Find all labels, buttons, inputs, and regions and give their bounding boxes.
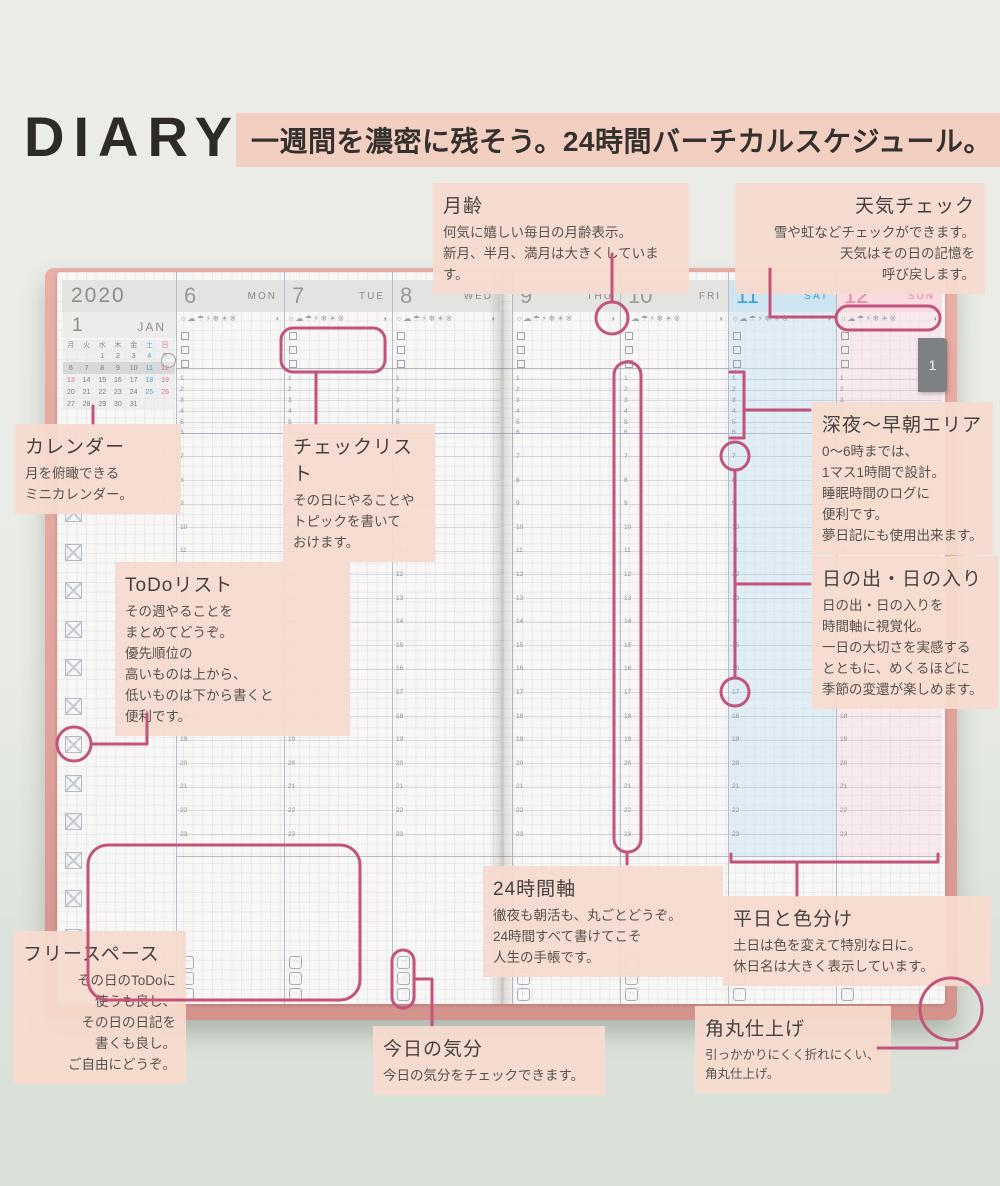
hour-line [513, 787, 620, 788]
day-name: FRI [699, 291, 721, 302]
hour-line [393, 787, 500, 788]
hour-line [621, 645, 728, 646]
hour-number: 8 [732, 477, 736, 484]
hour-line [285, 411, 392, 412]
calendar-date: 11 [141, 365, 157, 372]
hour-number: 17 [396, 689, 403, 696]
hour-line [621, 574, 728, 575]
hour-number: 20 [516, 760, 523, 767]
hour-line [393, 422, 500, 423]
weather-row: ○☁☂⚡❄☀※◑ [397, 314, 495, 323]
weather-icons: ○☁☂⚡❄☀※ [517, 314, 574, 323]
hour-line [393, 645, 500, 646]
annotation-body: 引っかかりにくく折れにくい、 角丸仕上げ。 [705, 1046, 881, 1085]
hour-line [513, 551, 620, 552]
calendar-date: 19 [157, 377, 173, 384]
hour-number: 1 [516, 375, 520, 382]
weather-row: ○☁☂⚡❄☀※◑ [181, 314, 279, 323]
hour-line [729, 834, 836, 835]
hour-number: 12 [396, 571, 403, 578]
checklist-checkbox [841, 346, 849, 354]
hour-number: 15 [732, 642, 739, 649]
hour-line [729, 379, 836, 380]
todo-checkbox [65, 544, 82, 561]
hour-number: 4 [288, 408, 292, 415]
annotation-body: 何気に嬉しい毎日の月齢表示。 新月、半月、満月は大きくしています。 [443, 223, 679, 286]
calendar-date: 8 [94, 365, 110, 372]
hour-number: 3 [180, 397, 184, 404]
hour-line [177, 740, 284, 741]
hour-number: 14 [396, 618, 403, 625]
annotation-title: ToDoリスト [125, 570, 340, 597]
hour-line [177, 456, 284, 457]
hour-number: 21 [840, 783, 847, 790]
hour-number: 21 [288, 783, 295, 790]
hour-number: 16 [516, 665, 523, 672]
hour-number: 18 [624, 713, 631, 720]
hour-line [513, 669, 620, 670]
hour-number: 22 [840, 807, 847, 814]
hour-number: 9 [516, 500, 520, 507]
calendar-date: 15 [94, 377, 110, 384]
hour-line [621, 810, 728, 811]
hour-number: 2 [840, 386, 844, 393]
annotation-title: 平日と色分け [733, 904, 981, 931]
hour-number: 4 [180, 408, 184, 415]
hour-number: 19 [288, 736, 295, 743]
calendar-week-row: 2728293031 [63, 398, 175, 410]
hour-number: 5 [624, 419, 628, 426]
annotation-title: チェックリスト [293, 432, 425, 486]
hour-number: 4 [624, 408, 628, 415]
hour-line [393, 834, 500, 835]
hour-number: 19 [624, 736, 631, 743]
hour-line [285, 810, 392, 811]
hour-number: 8 [516, 477, 520, 484]
moon-phase-icon: ◑ [932, 314, 937, 323]
annotation-today-mood: 今日の気分 今日の気分をチェックできます。 [373, 1026, 605, 1095]
calendar-date: 16 [110, 377, 126, 384]
calendar-date: 3 [126, 353, 142, 360]
hour-number: 8 [624, 477, 628, 484]
mood-check-icon: ·· [289, 956, 302, 969]
weather-row: ○☁☂⚡❄☀※◑ [625, 314, 723, 323]
weather-icons: ○☁☂⚡❄☀※ [397, 314, 454, 323]
hour-number: 22 [624, 807, 631, 814]
hour-number: 23 [840, 831, 847, 838]
hour-line [513, 598, 620, 599]
hour-number: 3 [732, 397, 736, 404]
weather-row: ○☁☂⚡❄☀※◑ [289, 314, 387, 323]
hour-number: 1 [624, 375, 628, 382]
calendar-date: 13 [63, 377, 79, 384]
hour-line [393, 763, 500, 764]
hour-number: 21 [732, 783, 739, 790]
hour-line [621, 400, 728, 401]
hour-number: 16 [396, 665, 403, 672]
hour-number: 20 [624, 760, 631, 767]
hour-line [729, 740, 836, 741]
hour-line [513, 390, 620, 391]
hour-number: 10 [624, 524, 631, 531]
hour-line [621, 598, 728, 599]
hour-number: 12 [732, 571, 739, 578]
annotation-title: 天気チェック [745, 191, 975, 218]
hour-line [177, 422, 284, 423]
hour-line [513, 622, 620, 623]
hour-line [621, 763, 728, 764]
hour-number: 13 [732, 595, 739, 602]
hour-number: 16 [732, 665, 739, 672]
hour-number: 14 [624, 618, 631, 625]
hour-number: 23 [396, 831, 403, 838]
weather-row: ○☁☂⚡❄☀※◑ [733, 314, 831, 323]
hour-number: 4 [516, 408, 520, 415]
calendar-date: 20 [63, 389, 79, 396]
hour-line [621, 390, 728, 391]
todo-checkbox [65, 582, 82, 599]
hour-line [621, 669, 728, 670]
todo-checkbox [65, 736, 82, 753]
hour-line [393, 390, 500, 391]
calendar-date: 25 [141, 389, 157, 396]
checklist-checkbox [289, 346, 297, 354]
hour-number: 13 [516, 595, 523, 602]
hour-number: 19 [732, 736, 739, 743]
hour-number: 6 [624, 429, 628, 436]
hour-line [513, 574, 620, 575]
calendar-date: 22 [94, 389, 110, 396]
month-label: 1 JAN [62, 312, 176, 338]
annotation-body: その週やることを まとめてどうぞ。 優先順位の 高いものは上から、 低いものは下… [125, 602, 340, 728]
year-label: 2020 [62, 280, 176, 312]
hour-line [393, 411, 500, 412]
hour-number: 16 [624, 665, 631, 672]
hour-line [177, 390, 284, 391]
calendar-weekday: 木 [110, 340, 126, 350]
hour-line [393, 669, 500, 670]
calendar-date: 14 [79, 377, 95, 384]
hour-line [513, 645, 620, 646]
hour-line [177, 379, 284, 380]
hour-line [285, 834, 392, 835]
calendar-weekday: 土 [141, 340, 157, 350]
hour-line [513, 716, 620, 717]
todo-checkbox [65, 659, 82, 676]
annotation-sunrise-sunset: 日の出・日の入り 日の出・日の入りを 時間軸に視覚化。 一日の大切さを実感する … [812, 556, 998, 709]
hour-line [837, 716, 942, 717]
calendar-date: 10 [126, 365, 142, 372]
hour-number: 2 [516, 386, 520, 393]
hour-line [621, 456, 728, 457]
hour-line [513, 456, 620, 457]
hour-number: 3 [288, 397, 292, 404]
month-index-tab: 1 [918, 338, 947, 392]
annotation-midnight-area: 深夜〜早朝エリア 0〜6時までは、 1マス1時間で設計。 睡眠時間のログに 便利… [812, 402, 993, 555]
moon-phase-icon: ◑ [610, 314, 615, 323]
hour-line [837, 740, 942, 741]
hour-number: 13 [396, 595, 403, 602]
checklist-checkbox [181, 346, 189, 354]
hour-line [513, 504, 620, 505]
mood-check-icon: ·· [397, 972, 410, 985]
hour-line [177, 411, 284, 412]
hour-number: 2 [732, 386, 736, 393]
todo-checkbox [65, 775, 82, 792]
hour-number: 21 [180, 783, 187, 790]
hour-number: 20 [288, 760, 295, 767]
hour-line [393, 740, 500, 741]
calendar-weekday: 金 [126, 340, 142, 350]
hour-number: 20 [840, 760, 847, 767]
hour-number: 21 [396, 783, 403, 790]
calendar-date: 9 [110, 365, 126, 372]
hour-number: 7 [516, 453, 520, 460]
hour-number: 9 [732, 500, 736, 507]
hour-number: 22 [732, 807, 739, 814]
mood-check-icon: ·· [841, 988, 854, 1001]
hour-number: 3 [516, 397, 520, 404]
weather-row: ○☁☂⚡❄☀※◑ [517, 314, 615, 323]
hour-line [285, 740, 392, 741]
month-number: 1 [72, 315, 83, 337]
hour-line [513, 480, 620, 481]
checklist-checkbox [517, 360, 525, 368]
hour-number: 1 [396, 375, 400, 382]
hour-number: 10 [180, 524, 187, 531]
hour-line [621, 787, 728, 788]
annotation-free-space: フリースペース その日のToDoに 使うも良し、 その日の日記を 書くも良し。 … [13, 931, 186, 1084]
hour-line [621, 716, 728, 717]
annotation-rounded-corners: 角丸仕上げ 引っかかりにくく折れにくい、 角丸仕上げ。 [695, 1006, 891, 1093]
mood-check-icon: ·· [289, 972, 302, 985]
calendar-date: 17 [126, 377, 142, 384]
calendar-week-row: 12345 [63, 350, 175, 362]
annotation-body: 雪や虹などチェックができます。 天気はその日の記憶を 呼び戻します。 [745, 223, 975, 286]
hour-number: 1 [732, 375, 736, 382]
hour-number: 18 [840, 713, 847, 720]
annotation-body: 月を俯瞰できる ミニカレンダー。 [25, 464, 171, 506]
moon-phase-icon: ◑ [382, 314, 387, 323]
annotation-body: 徹夜も朝活も、丸ごとどうぞ。 24時間すべて書けてこそ 人生の手帳です。 [493, 906, 713, 969]
hour-number: 17 [516, 689, 523, 696]
hour-line [621, 692, 728, 693]
hour-number: 19 [180, 736, 187, 743]
annotation-title: フリースペース [23, 939, 176, 966]
weather-row: ○☁☂⚡❄☀※◑ [841, 314, 937, 323]
hour-number: 23 [732, 831, 739, 838]
hour-line [621, 834, 728, 835]
page: { "header": { "brand": "DIARY", "tagline… [0, 0, 1000, 1186]
day-name: TUE [359, 291, 385, 302]
calendar-date: 29 [94, 401, 110, 408]
checklist-checkbox [733, 360, 741, 368]
checklist-checkbox [517, 332, 525, 340]
hour-number: 17 [624, 689, 631, 696]
hour-line [513, 379, 620, 380]
tagline-text: 一週間を濃密に残そう。24時間バーチカルスケジュール。 [251, 120, 992, 160]
calendar-date: 7 [79, 365, 95, 372]
annotation-title: カレンダー [25, 432, 171, 459]
calendar-weekday: 日 [157, 340, 173, 350]
calendar-date: 1 [94, 353, 110, 360]
hour-number: 11 [732, 547, 739, 554]
annotation-weather-check: 天気チェック 雪や虹などチェックができます。 天気はその日の記憶を 呼び戻します… [735, 183, 985, 294]
hour-line [837, 834, 942, 835]
hour-number: 1 [840, 375, 844, 382]
hour-number: 12 [516, 571, 523, 578]
hour-line [285, 400, 392, 401]
tagline-band: 一週間を濃密に残そう。24時間バーチカルスケジュール。 [236, 113, 1000, 167]
hour-number: 10 [516, 524, 523, 531]
hour-line [513, 400, 620, 401]
hour-line [513, 422, 620, 423]
hour-line [393, 692, 500, 693]
hour-line [177, 433, 284, 434]
month-name: JAN [137, 320, 166, 334]
calendar-date: 26 [157, 389, 173, 396]
checklist-checkbox [397, 360, 405, 368]
hour-line [513, 810, 620, 811]
day-header: 6MON [177, 280, 284, 312]
hour-line [177, 787, 284, 788]
checklist-checkbox [181, 360, 189, 368]
calendar-weekday: 火 [79, 340, 95, 350]
hour-number: 20 [396, 760, 403, 767]
hour-line [513, 692, 620, 693]
checklist-checkbox [397, 346, 405, 354]
hour-line [393, 622, 500, 623]
calendar-week-row: 13141516171819 [63, 374, 175, 386]
hour-number: 9 [624, 500, 628, 507]
hour-line [177, 527, 284, 528]
hour-number: 19 [840, 736, 847, 743]
calendar-date: 28 [79, 401, 95, 408]
checklist-checkbox [733, 332, 741, 340]
hour-number: 4 [396, 408, 400, 415]
calendar-date: 23 [110, 389, 126, 396]
hour-number: 17 [732, 689, 739, 696]
hour-line [177, 763, 284, 764]
hour-number: 7 [732, 453, 736, 460]
annotation-title: 深夜〜早朝エリア [822, 410, 983, 437]
hour-line [285, 390, 392, 391]
hour-number: 22 [396, 807, 403, 814]
checklist-checkbox [625, 360, 633, 368]
hour-number: 15 [396, 642, 403, 649]
hour-number: 22 [180, 807, 187, 814]
hour-line [285, 379, 392, 380]
hour-line [177, 504, 284, 505]
hour-number: 7 [624, 453, 628, 460]
hour-line [621, 422, 728, 423]
annotation-body: 0〜6時までは、 1マス1時間で設計。 睡眠時間のログに 便利です。 夢日記にも… [822, 442, 983, 547]
hour-number: 14 [516, 618, 523, 625]
checklist-checkbox [289, 360, 297, 368]
calendar-date: 4 [141, 353, 157, 360]
annotation-title: 月齢 [443, 191, 679, 218]
hour-line [177, 551, 284, 552]
checklist-checkbox [517, 346, 525, 354]
hour-line [393, 574, 500, 575]
hour-line [729, 390, 836, 391]
hour-line [621, 622, 728, 623]
checklist-checkbox [841, 332, 849, 340]
checklist-checkbox [397, 332, 405, 340]
hour-number: 19 [396, 736, 403, 743]
day-number: 6 [184, 283, 196, 309]
hour-line [177, 400, 284, 401]
calendar-date: 30 [110, 401, 126, 408]
hour-number: 23 [288, 831, 295, 838]
day-number: 8 [400, 283, 412, 309]
calendar-date: 24 [126, 389, 142, 396]
hour-number: 6 [516, 429, 520, 436]
checklist-checkbox [733, 346, 741, 354]
calendar-weekday: 水 [94, 340, 110, 350]
hour-line [729, 763, 836, 764]
annotation-body: その日にやることや トピックを書いて おけます。 [293, 491, 425, 554]
checklist-checkbox [625, 332, 633, 340]
hour-number: 14 [732, 618, 739, 625]
hour-line [393, 810, 500, 811]
mood-check-icon: ·· [517, 988, 530, 1001]
annotation-24h-axis: 24時間軸 徹夜も朝活も、丸ごとどうぞ。 24時間すべて書けてこそ 人生の手帳で… [483, 866, 723, 977]
todo-checkbox [65, 813, 82, 830]
weather-icons: ○☁☂⚡❄☀※ [841, 314, 898, 323]
hour-number: 18 [516, 713, 523, 720]
day-number: 7 [292, 283, 304, 309]
hour-line [513, 433, 620, 434]
hour-number: 18 [732, 713, 739, 720]
annotation-body: 土日は色を変えて特別な日に。 休日名は大きく表示しています。 [733, 936, 981, 978]
hour-number: 15 [624, 642, 631, 649]
mood-check-icon: ·· [289, 988, 302, 1001]
hour-line [513, 740, 620, 741]
hour-number: 6 [732, 429, 736, 436]
mood-check-icon: ·· [397, 956, 410, 969]
hour-line [621, 551, 728, 552]
mood-check-icon: ·· [733, 988, 746, 1001]
hour-number: 11 [516, 547, 523, 554]
hour-line [513, 763, 620, 764]
hour-number: 11 [624, 547, 631, 554]
hour-line [837, 810, 942, 811]
hour-line [393, 598, 500, 599]
hour-line [621, 740, 728, 741]
hour-number: 2 [396, 386, 400, 393]
hour-line [285, 763, 392, 764]
hour-line [285, 422, 392, 423]
hour-line [837, 763, 942, 764]
hour-line [729, 810, 836, 811]
annotation-moon-age: 月齢 何気に嬉しい毎日の月齢表示。 新月、半月、満月は大きくしています。 [433, 183, 689, 294]
annotation-checklist: チェックリスト その日にやることや トピックを書いて おけます。 [283, 424, 435, 562]
moon-phase-icon: ◑ [826, 314, 831, 323]
mood-check-icon: ·· [625, 988, 638, 1001]
calendar-week-row: 6789101112 [63, 362, 175, 374]
hour-line [729, 787, 836, 788]
hour-number: 2 [624, 386, 628, 393]
hour-number: 15 [516, 642, 523, 649]
hour-number: 18 [396, 713, 403, 720]
hour-line [621, 480, 728, 481]
weather-icons: ○☁☂⚡❄☀※ [181, 314, 238, 323]
hour-line [621, 433, 728, 434]
hour-line [621, 379, 728, 380]
hour-line [393, 379, 500, 380]
calendar-weekday: 月 [63, 340, 79, 350]
